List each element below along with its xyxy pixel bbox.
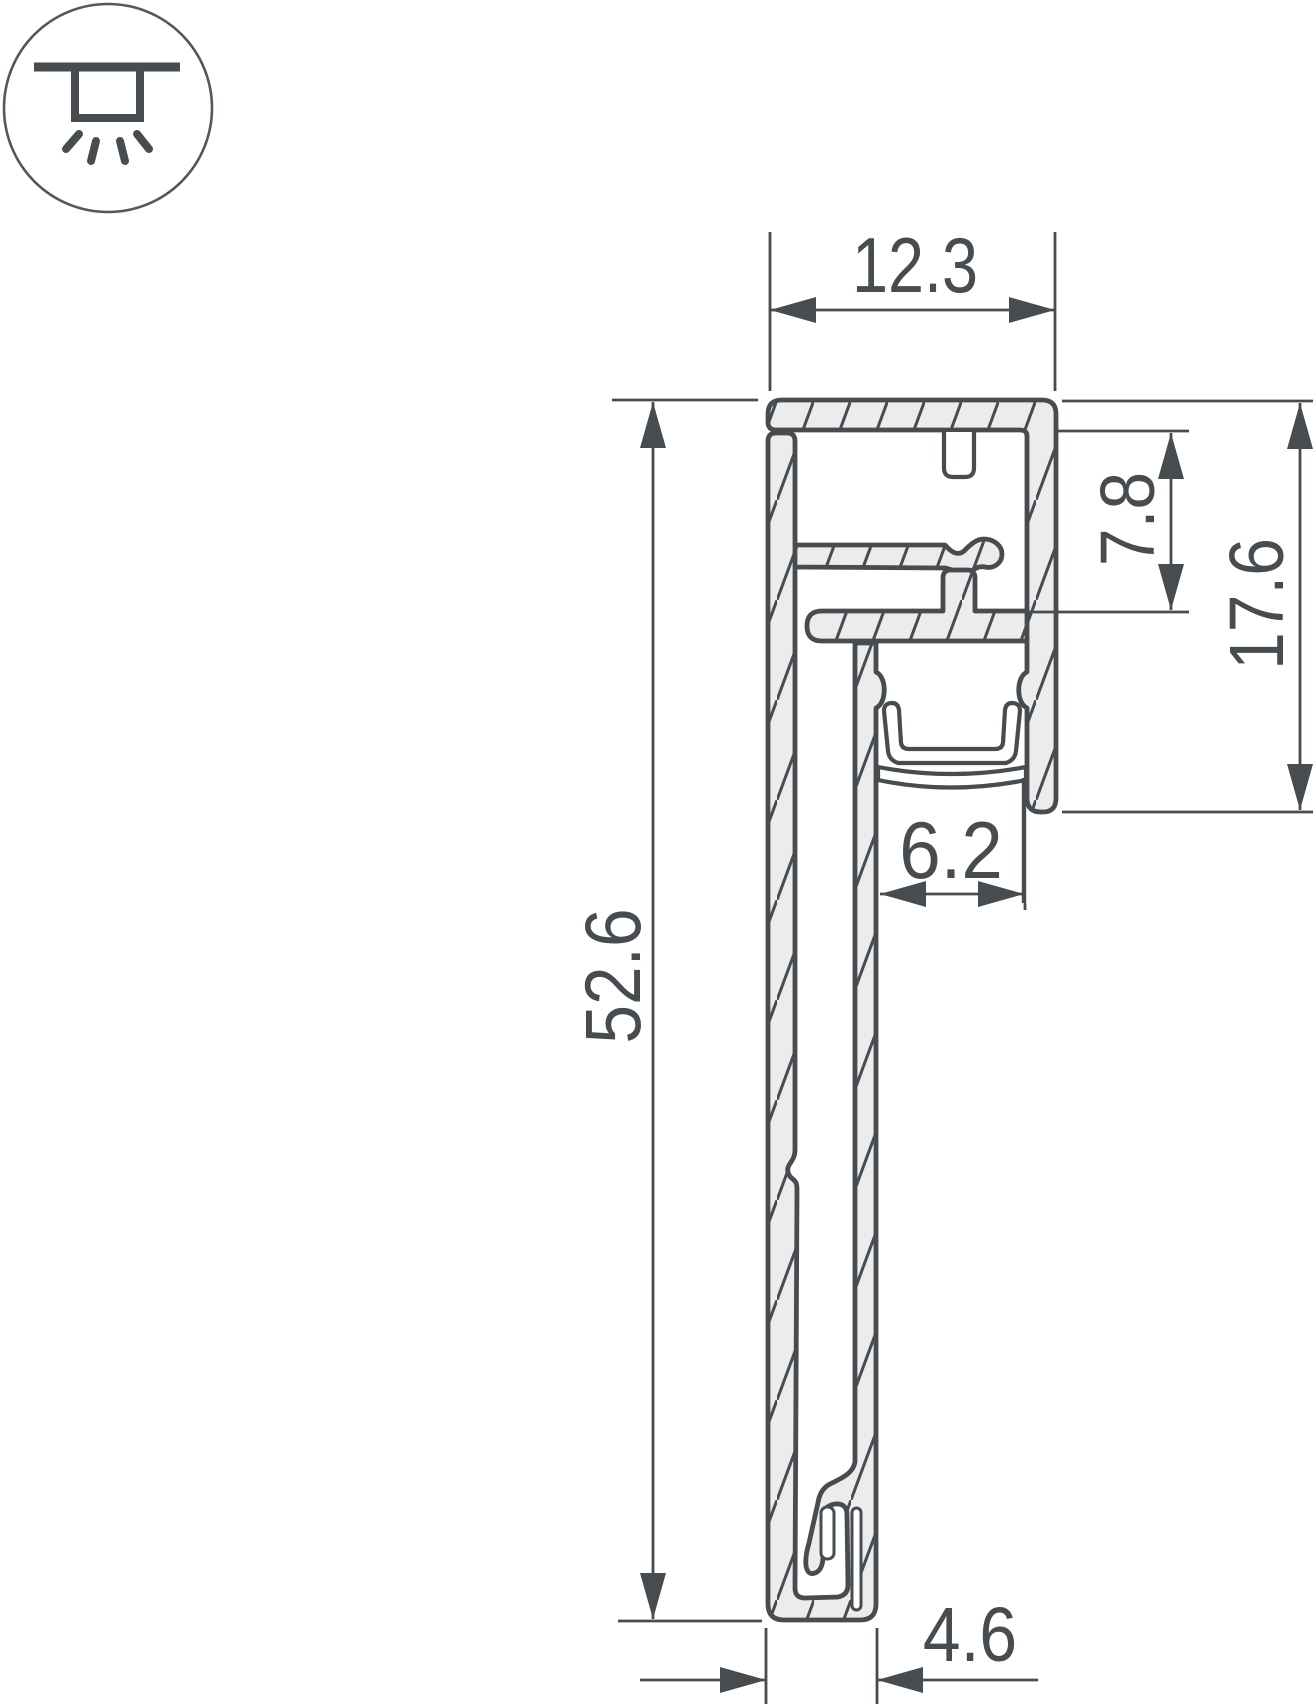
svg-text:52.6: 52.6 xyxy=(569,908,657,1043)
svg-text:17.6: 17.6 xyxy=(1214,538,1300,670)
svg-text:12.3: 12.3 xyxy=(852,222,978,309)
svg-text:4.6: 4.6 xyxy=(923,1592,1017,1678)
svg-text:6.2: 6.2 xyxy=(899,806,1003,896)
svg-text:7.8: 7.8 xyxy=(1085,472,1171,566)
